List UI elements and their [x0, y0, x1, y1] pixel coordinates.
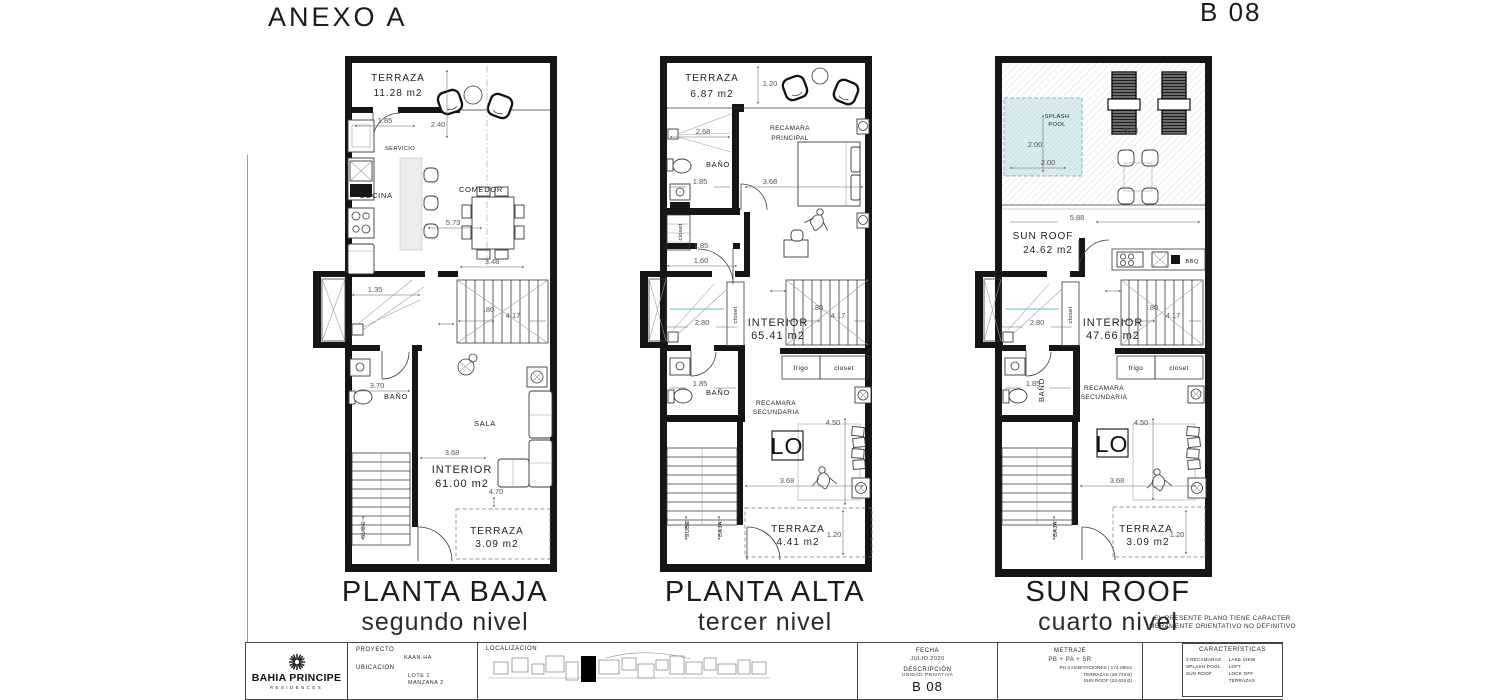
feature-item: LOFT: [1229, 663, 1279, 670]
dim-4-17: 4.17: [831, 311, 846, 320]
plan2-subtitle: tercer nivel: [640, 608, 890, 636]
stairs-down-label: BAJA: [1053, 521, 1059, 537]
bathroom-fixtures: [349, 359, 372, 404]
dim-2-00a: 2.00: [1028, 140, 1043, 149]
sun-logo-icon: [288, 653, 306, 671]
highlighted-unit: [581, 656, 596, 682]
shower-mid: [1003, 284, 1061, 342]
terrace-label: TERRAZA: [1119, 524, 1173, 535]
secondary-bedroom-label-2: SECUNDARIA: [1081, 394, 1128, 401]
title-block: BAHIA PRINCIPE RESIDENCES PROYECTO KAAN-…: [245, 642, 1283, 700]
terrace-area: 11.28 m2: [374, 88, 423, 99]
dim-3-68: 3.68: [445, 448, 460, 457]
feature-item: LOCK OFF: [1229, 670, 1279, 677]
stairs-down: [667, 448, 737, 540]
entry-door: [418, 527, 452, 561]
dim-3-68: 3.68: [1110, 476, 1125, 485]
date-value: JULIO.2020: [858, 656, 997, 662]
lockoff-label: LO: [1096, 431, 1129, 457]
terrace-area: 6.87 m2: [690, 89, 733, 100]
description-unit: B 08: [858, 679, 997, 694]
brand-subtitle: RESIDENCES: [270, 685, 323, 690]
closet-label: closet: [834, 365, 853, 372]
feature-item: 3 RECAMARAS: [1186, 656, 1229, 663]
closet-label-v: closet: [678, 223, 684, 240]
terrace-furniture: [436, 86, 514, 120]
sunroof-label: SUN ROOF: [1013, 231, 1074, 242]
disclaimer-line2: MERAMENTE ORIENTATIVO NO DEFINITIVO: [1110, 623, 1335, 631]
date-label: FECHA: [858, 648, 997, 654]
metraje-formula: PB + PA + SR: [998, 657, 1142, 663]
dim-1-85b: 1.85: [694, 241, 709, 250]
feature-item: TERRAZAS: [1229, 677, 1279, 684]
dim-2-80: 2.80: [695, 318, 710, 327]
project-label: PROYECTO: [356, 647, 469, 653]
terrace2-area: 3.09 m2: [475, 539, 518, 550]
dim-80: .80: [1148, 303, 1158, 312]
brand-cell: BAHIA PRINCIPE RESIDENCES: [245, 643, 348, 699]
person-figure: [1145, 467, 1172, 493]
dim-4-50: 4.50: [1134, 418, 1149, 427]
localization-cell: LOCALIZACION: [478, 643, 858, 699]
bbq-label: BBQ: [1185, 259, 1198, 265]
terrace-door: [1082, 527, 1115, 560]
shower: [352, 280, 424, 335]
plan-sheet: ANEXO A B 08: [0, 0, 1500, 700]
interior-label: INTERIOR: [432, 464, 493, 476]
feature-item: SUN ROOF: [1186, 670, 1229, 677]
floorplan-sun-roof: SPLASH POOL 2.00 2.00 5.73 5.88 SUN ROOF…: [960, 50, 1225, 585]
metraje-cell: METRAJE PB + PA + SR PH 3 HABITACIONES |…: [998, 643, 1143, 699]
closet-label-v2: closet: [733, 306, 739, 323]
bathroom-mid-fixtures: [668, 358, 692, 403]
desk: [784, 230, 808, 257]
interior-label: INTERIOR: [748, 317, 809, 329]
bedroom-door: [741, 184, 767, 210]
dining-label: COMEDOR: [459, 185, 503, 194]
dim-1-60: 1.60: [694, 256, 709, 265]
master-bedroom-label-1: RECAMARA: [770, 125, 810, 132]
bathroom-door: [691, 351, 716, 376]
sheet-frame-line: [247, 155, 248, 642]
terrace-label: TERRAZA: [685, 73, 739, 84]
dim-4-17: 4.17: [506, 311, 521, 320]
sunroof-area: 24.62 m2: [1023, 245, 1073, 256]
bathroom-door: [1026, 351, 1051, 376]
kitchen-bar: [400, 158, 438, 250]
dim-1-85c: 1.85: [693, 379, 708, 388]
plan1-subtitle: segundo nivel: [320, 608, 570, 636]
secondary-bedroom-label-2: SECUNDARIA: [753, 409, 800, 416]
metraje-line3: SUN ROOF (24.62m2): [998, 679, 1132, 686]
master-bedroom-label-2: PRINCIPAL: [771, 135, 808, 142]
stairs-up-label: SUBE: [685, 521, 691, 538]
terrace2-label: TERRAZA: [470, 526, 524, 537]
terrace-area: 3.09 m2: [1126, 537, 1169, 548]
stairs-down: [1002, 448, 1072, 540]
splash-pool-label-1: SPLASH: [1045, 114, 1070, 120]
living-label: SALA: [474, 419, 496, 428]
metraje-label: METRAJE: [998, 648, 1142, 654]
project-cell: PROYECTO KAAN-HA UBICACION LOTE 1 MANZAN…: [348, 643, 478, 699]
interior-area: 61.00 m2: [435, 478, 489, 490]
closet-label: closet: [1169, 365, 1188, 372]
disclaimer-line1: EL PRESENTE PLANO TIENE CARACTER: [1110, 615, 1335, 623]
plan3-title: SUN ROOF: [983, 577, 1233, 608]
feature-item: LAKE VIEW: [1229, 656, 1279, 663]
location-line2: MANZANA 2: [408, 680, 469, 686]
splash-pool-label-2: POOL: [1048, 122, 1066, 128]
lockoff-label: LO: [771, 433, 804, 459]
floorplan-planta-baja: TERRAZA 11.28 m2 1.85 2.40 SERVICIO COCI…: [300, 50, 570, 580]
interior-area: 65.41 m2: [751, 330, 805, 342]
features-cell: CARACTERÍSTICAS 3 RECAMARAS SPLASH POOL …: [1143, 643, 1283, 699]
dim-4-17: 4.17: [1166, 311, 1181, 320]
secondary-bedroom-label-1: RECAMARA: [1084, 385, 1124, 392]
dim-1-85: 1.85: [693, 177, 708, 186]
dim-80: .80: [813, 303, 823, 312]
stairs-down-label: BAJA: [718, 521, 724, 537]
interior-area: 47.66 m2: [1086, 330, 1140, 342]
location-label: UBICACION: [356, 665, 469, 671]
bathroom2-label: BAÑO: [706, 388, 730, 397]
features-box: CARACTERÍSTICAS 3 RECAMARAS SPLASH POOL …: [1182, 643, 1283, 697]
hall-door: [698, 249, 733, 284]
dining-table: [462, 187, 524, 259]
project-value: KAAN-HA: [404, 655, 469, 661]
dim-80: .80: [484, 305, 494, 314]
dim-1-35: 1.35: [368, 285, 383, 294]
dim-3-68b: 3.68: [780, 476, 795, 485]
bathroom-mid-fixtures: [1003, 358, 1027, 403]
dim-1-20: 1.20: [1170, 530, 1185, 539]
secondary-bedroom-label-1: RECAMARA: [756, 400, 796, 407]
service-label: SERVICIO: [385, 146, 415, 152]
description-sub: UNIDAD PRIVATIVA: [858, 673, 997, 678]
dim-4-50: 4.50: [826, 418, 841, 427]
site-map: [486, 652, 816, 688]
plan2-title: PLANTA ALTA: [640, 577, 890, 608]
shower-mid: [668, 284, 726, 342]
kitchen-label: COCINA: [359, 191, 392, 200]
terrace-furniture: [781, 68, 860, 106]
terrace-label: TERRAZA: [371, 73, 425, 84]
interior-label: INTERIOR: [1083, 317, 1144, 329]
person-figure: [803, 206, 832, 234]
plan2-title-block: PLANTA ALTA tercer nivel: [640, 577, 890, 636]
bathroom-label: BAÑO: [384, 392, 408, 401]
dim-3-68: 3.68: [763, 177, 778, 186]
dim-1-20b: 1.20: [827, 530, 842, 539]
dim-3-70: 3.70: [370, 381, 385, 390]
dim-1-20: 1.20: [763, 79, 778, 88]
closet-label-v: closet: [1068, 306, 1074, 323]
plan1-title: PLANTA BAJA: [320, 577, 570, 608]
bathroom-label: BAÑO: [1037, 378, 1046, 402]
dim-4-70: 4.70: [489, 487, 504, 496]
dim-1-85: 1.85: [378, 116, 393, 125]
brand-name: BAHIA PRINCIPE: [252, 672, 342, 684]
terrace2-area: 4.41 m2: [776, 537, 819, 548]
feature-item: SPLASH POOL: [1186, 663, 1229, 670]
dim-5-73: 5.73: [446, 218, 461, 227]
bathroom-label: BAÑO: [706, 160, 730, 169]
floorplan-planta-alta: TERRAZA 6.87 m2 1.20 RECAMARA PRINCIPAL …: [630, 50, 890, 580]
unit-code-label: B 08: [1200, 0, 1262, 28]
date-description-cell: FECHA JULIO.2020 DESCRIPCIÓN UNIDAD PRIV…: [858, 643, 998, 699]
dim-2-68: 2.68: [696, 127, 711, 136]
secondary-bed: [798, 387, 871, 500]
plan1-title-block: PLANTA BAJA segundo nivel: [320, 577, 570, 636]
features-label: CARACTERÍSTICAS: [1186, 646, 1279, 653]
fridge-label: frigo: [1129, 365, 1144, 372]
bathroom-fixtures: [667, 159, 691, 213]
disclaimer: EL PRESENTE PLANO TIENE CARACTER MERAMEN…: [1110, 615, 1335, 631]
dim-5-88: 5.88: [1070, 213, 1085, 222]
terrace2-label: TERRAZA: [771, 524, 825, 535]
fridge-label: frigo: [794, 365, 809, 372]
dim-3-48: 3.48: [485, 257, 500, 266]
dim-2-00b: 2.00: [1041, 158, 1056, 167]
utility-closet: [322, 279, 345, 341]
dim-2-80: 2.80: [1030, 318, 1045, 327]
location-line1: LOTE 1: [408, 673, 469, 679]
stairs-up-label: SUBE: [361, 522, 367, 539]
dim-2-40: 2.40: [431, 120, 446, 129]
person-figure-2: [810, 465, 837, 491]
secondary-bed: [1133, 386, 1206, 500]
deck-edge: [1002, 205, 1205, 209]
bathroom-door: [382, 351, 409, 379]
page-title: ANEXO A: [268, 2, 408, 33]
dim-5-73: 5.73: [1124, 126, 1139, 135]
